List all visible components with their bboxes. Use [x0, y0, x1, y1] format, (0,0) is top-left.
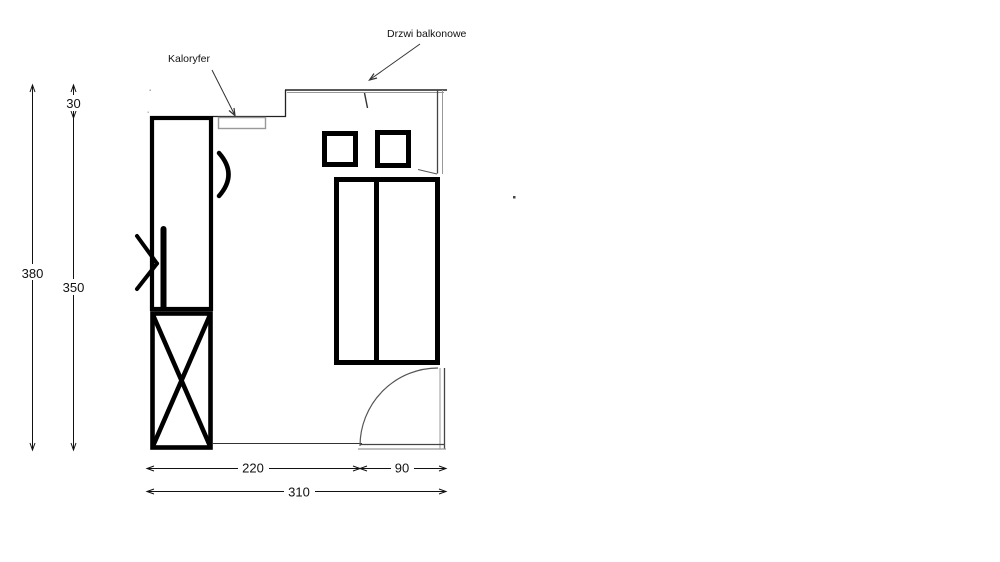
window-sill-tick: [418, 170, 437, 175]
nightstand-right: [378, 133, 409, 166]
balcony-door-leaf: [365, 93, 368, 108]
annotation-radiator: Kaloryfer: [168, 53, 235, 116]
annotation-balcony-door: Drzwi balkonowe: [370, 28, 467, 80]
bed-frame: [337, 180, 438, 363]
dim-value-220: 220: [242, 461, 264, 476]
dim-value-30: 30: [66, 96, 80, 111]
walls: [213, 90, 447, 450]
balcony-door-label: Drzwi balkonowe: [387, 28, 467, 40]
dim-value-310: 310: [288, 485, 310, 500]
door-swing-arc: [360, 368, 438, 446]
dimension-horizontal-220-90: 220 90: [147, 460, 446, 476]
stray-point-mark: [148, 112, 150, 114]
radiator-leader-line: [212, 70, 235, 115]
stray-point-mark: [150, 90, 152, 92]
floor-plan-canvas: Kaloryfer Drzwi balkonowe 380 30 350: [0, 0, 1000, 562]
wardrobe-handle-arc: [219, 153, 229, 196]
stray-point-mark: [513, 196, 516, 199]
wardrobe: [137, 118, 229, 309]
radiator: [219, 118, 266, 129]
nightstand-left: [325, 134, 356, 165]
dimension-vertical-30-350: 30 350: [58, 85, 89, 450]
balcony-door-leader-line: [370, 44, 420, 80]
floor-plan-drawing: Kaloryfer Drzwi balkonowe 380 30 350: [0, 0, 1000, 562]
dim-value-350: 350: [63, 280, 85, 295]
bed: [337, 180, 438, 363]
dim-value-90: 90: [395, 461, 409, 476]
dimension-vertical-380: 380: [15, 85, 49, 450]
dim-value-380: 380: [22, 266, 44, 281]
radiator-label: Kaloryfer: [168, 53, 211, 65]
dimension-horizontal-310: 310: [147, 484, 446, 500]
wardrobe-cross-box: [153, 314, 211, 448]
